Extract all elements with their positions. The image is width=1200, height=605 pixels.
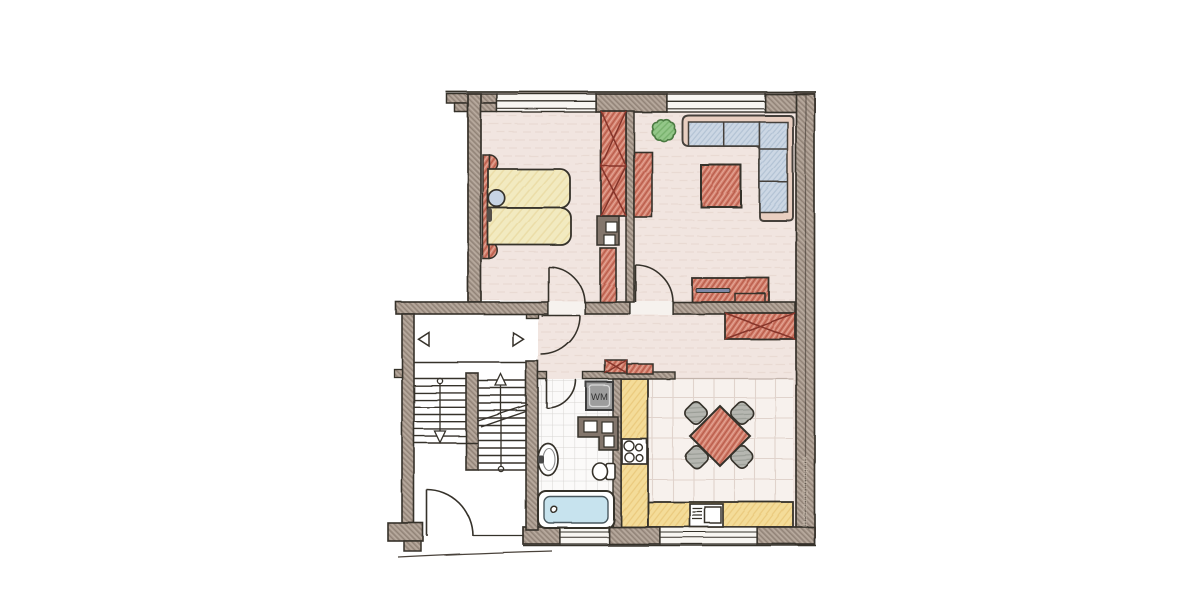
svg-text:WM: WM	[591, 392, 608, 403]
svg-text:Illustration@immografik: Illustration@immografik	[802, 455, 809, 527]
